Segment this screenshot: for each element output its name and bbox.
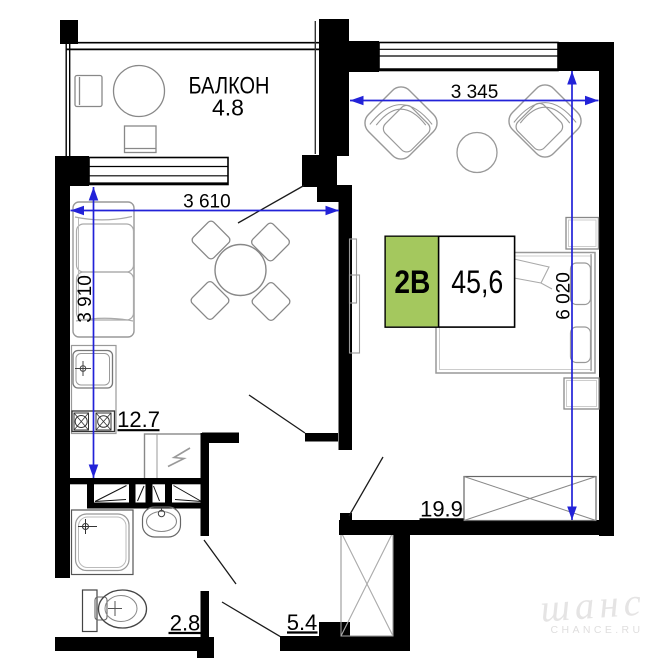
svg-text:12.7: 12.7 [117, 407, 160, 432]
svg-text:45,6: 45,6 [451, 264, 503, 300]
svg-text:3 345: 3 345 [451, 82, 499, 103]
svg-text:5.4: 5.4 [287, 610, 318, 635]
svg-text:CHANCE.RU: CHANCE.RU [550, 624, 643, 636]
svg-text:2.8: 2.8 [170, 611, 201, 636]
svg-text:4.8: 4.8 [212, 94, 244, 120]
svg-text:6 020: 6 020 [554, 272, 575, 320]
svg-text:2В: 2В [394, 264, 430, 300]
svg-text:3 610: 3 610 [183, 192, 231, 213]
svg-text:3 910: 3 910 [75, 275, 96, 323]
svg-text:19.9: 19.9 [420, 497, 463, 522]
